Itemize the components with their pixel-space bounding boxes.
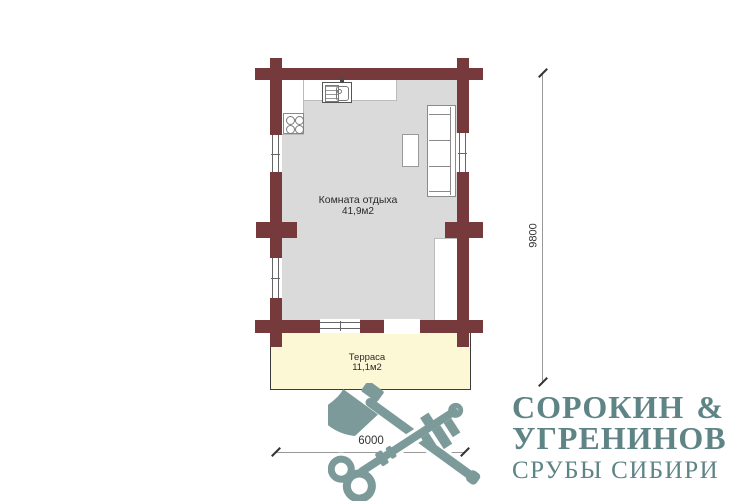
wall-top xyxy=(255,68,483,80)
window-bottom xyxy=(320,319,360,333)
entry-strip xyxy=(434,238,458,321)
sofa xyxy=(427,105,456,197)
dim-tick xyxy=(538,377,548,387)
logo-mark xyxy=(328,383,513,501)
sink-faucet-icon xyxy=(340,78,344,83)
log-crossing-left xyxy=(256,222,297,238)
terrace-label: Терраса 11,1м2 xyxy=(307,353,427,373)
room-area: 41,9м2 xyxy=(296,206,420,217)
window-left-2 xyxy=(269,258,282,298)
stove xyxy=(283,113,304,134)
wall-left xyxy=(270,58,282,347)
wall-bottom-segment-2 xyxy=(360,320,384,333)
logo-tagline: СРУБЫ СИБИРИ xyxy=(512,457,724,485)
wall-bottom-segment-3 xyxy=(420,320,483,333)
wall-right xyxy=(457,58,469,347)
room-name: Комната отдыха xyxy=(296,195,420,206)
terrace-area: 11,1м2 xyxy=(307,363,427,373)
burner-icon xyxy=(286,125,295,134)
logo-name-1: СОРОКИН xyxy=(512,392,684,423)
room-label: Комната отдыха 41,9м2 xyxy=(296,195,420,217)
terrace-door-opening xyxy=(384,319,420,334)
wall-bottom-segment-1 xyxy=(255,320,320,333)
logo-text: СОРОКИН & УГРЕНИНОВ СРУБЫ СИБИРИ xyxy=(512,392,724,485)
floor-plan: Комната отдыха 41,9м2 Терраса 11,1м2 980… xyxy=(0,0,753,502)
dim-tick xyxy=(538,68,548,78)
logo-line-2: УГРЕНИНОВ xyxy=(512,423,724,454)
window-left-1 xyxy=(269,135,282,172)
dim-vertical-value: 9800 xyxy=(528,216,541,256)
dining-table xyxy=(402,134,419,167)
sink-tap-icon xyxy=(337,89,342,94)
window-right xyxy=(456,133,469,172)
logo-ampersand: & xyxy=(696,392,724,423)
log-crossing-right xyxy=(445,222,483,238)
logo-line-1: СОРОКИН & xyxy=(512,392,724,423)
dim-line-vertical xyxy=(542,73,543,382)
burner-icon xyxy=(295,116,304,125)
burner-icon xyxy=(286,116,295,125)
burner-icon xyxy=(295,125,304,134)
kitchen-sink xyxy=(322,82,352,103)
